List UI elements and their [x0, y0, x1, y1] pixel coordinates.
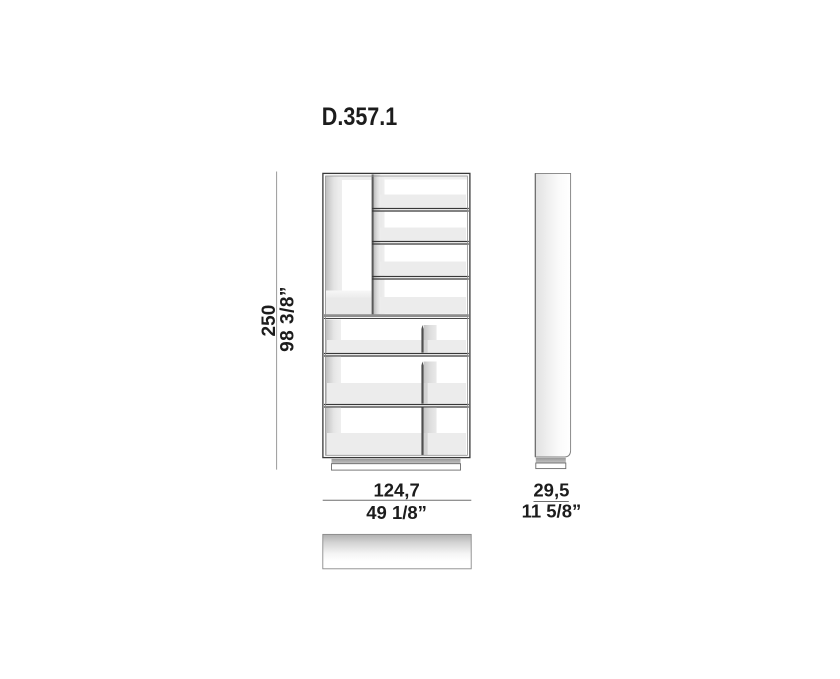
svg-text:D.357.1: D.357.1	[322, 102, 397, 130]
svg-text:98 3/8”: 98 3/8”	[278, 286, 299, 352]
svg-text:29,5: 29,5	[533, 479, 569, 500]
svg-text:124,7: 124,7	[373, 480, 419, 501]
svg-text:11 5/8”: 11 5/8”	[522, 500, 582, 521]
svg-text:49 1/8”: 49 1/8”	[366, 502, 427, 523]
